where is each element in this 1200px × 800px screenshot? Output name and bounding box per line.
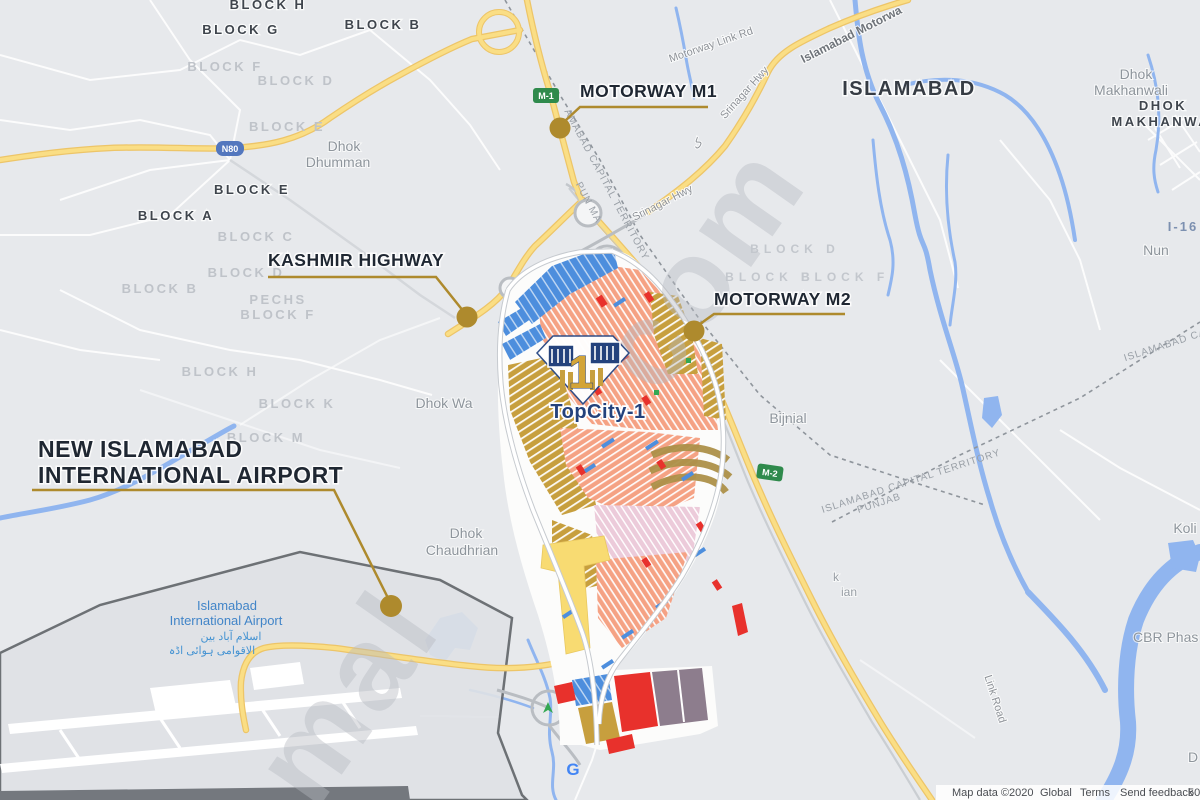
provider-link[interactable]: Global	[1040, 787, 1072, 799]
label-makhanwal-bold: MAKHANWAL	[1111, 114, 1200, 129]
map-data-copyright: Map data ©2020	[952, 787, 1034, 799]
svg-text:M-1: M-1	[538, 91, 554, 101]
airport-label-2: International Airport	[170, 613, 283, 628]
label-block-h-light: BLOCK H	[182, 364, 259, 379]
airport-label-urdu-1: اسلام آباد بین	[201, 630, 262, 643]
label-pechs: PECHS	[249, 292, 306, 307]
label-block-c: BLOCK C	[218, 229, 295, 244]
topcity-name: TopCity-1	[550, 401, 645, 423]
airport-label-1: Islamabad	[197, 598, 257, 613]
label-makhanwali: Makhanwali	[1094, 82, 1168, 98]
label-nun: Nun	[1143, 242, 1169, 258]
label-block-f: BLOCK F	[187, 59, 262, 74]
label-block-d: BLOCK D	[258, 73, 335, 88]
terms-link[interactable]: Terms	[1080, 787, 1110, 799]
label-dhok3: Dhok	[450, 525, 484, 541]
callout-dot-m2	[684, 321, 705, 342]
airport-label-urdu-2: الاقوامی ہوائی اڈہ	[169, 645, 255, 657]
label-dhok: Dhok	[328, 138, 362, 154]
label-dhok-wa: Dhok Wa	[415, 395, 472, 411]
svg-text:NEW ISLAMABAD: NEW ISLAMABAD	[38, 436, 243, 462]
label-block-f-right: BLOCK F	[801, 270, 889, 284]
scale-label: 500 m	[1188, 787, 1200, 799]
label-dhumman: Dhumman	[306, 154, 371, 170]
label-block-a: BLOCK A	[138, 208, 214, 223]
callout-dot-kashmir	[457, 307, 478, 328]
map-canvas[interactable]: mal com 1 TopCity-1 N80 M-1 M-2	[0, 0, 1200, 800]
label-dhok2: Dhok	[1120, 66, 1154, 82]
label-block-d-right: BLOCK D	[750, 242, 840, 256]
google-g-logo[interactable]: G	[566, 760, 579, 779]
m1-shield: M-1	[533, 88, 559, 103]
label-block-b-left: BLOCK B	[122, 281, 199, 296]
label-block-e-light: BLOCK E	[249, 119, 325, 134]
attribution-bar: Map data ©2020 Global Terms Send feedbac…	[936, 785, 1200, 800]
callout-dot-m1	[550, 118, 571, 139]
label-d-frag: D	[1188, 749, 1198, 765]
svg-text:M-2: M-2	[761, 467, 778, 479]
svg-text:1: 1	[568, 346, 594, 398]
callout-dot-airport	[380, 595, 402, 617]
label-block-h: BLOCK H	[230, 0, 307, 12]
label-k-frag: k	[833, 570, 840, 584]
svg-text:INTERNATIONAL AIRPORT: INTERNATIONAL AIRPORT	[38, 462, 343, 488]
map-screenshot: mal com 1 TopCity-1 N80 M-1 M-2	[0, 0, 1200, 800]
send-feedback-link[interactable]: Send feedback	[1120, 787, 1194, 799]
svg-text:MOTORWAY M2: MOTORWAY M2	[714, 289, 851, 309]
svg-text:KASHMIR HIGHWAY: KASHMIR HIGHWAY	[268, 250, 444, 270]
svg-text:MOTORWAY M1: MOTORWAY M1	[580, 81, 717, 101]
label-block-e: BLOCK E	[214, 182, 290, 197]
svg-text:N80: N80	[222, 144, 239, 154]
label-block-b-top: BLOCK B	[345, 17, 422, 32]
n80-shield: N80	[216, 141, 244, 156]
label-bijnial: Bijnial	[769, 410, 806, 426]
label-block-g: BLOCK G	[202, 22, 279, 37]
label-pechs-block-f: BLOCK F	[240, 307, 315, 322]
label-ian-frag: ian	[841, 585, 857, 599]
label-chaudhrian: Chaudhrian	[426, 542, 498, 558]
label-i16: I-16	[1168, 219, 1198, 234]
label-islamabad-city: ISLAMABAD	[842, 78, 976, 100]
label-dhok-bold: DHOK	[1139, 98, 1187, 113]
label-cbr-phase: CBR Phas	[1133, 629, 1198, 645]
label-koli: Koli	[1173, 520, 1196, 536]
label-block-k: BLOCK K	[259, 396, 336, 411]
